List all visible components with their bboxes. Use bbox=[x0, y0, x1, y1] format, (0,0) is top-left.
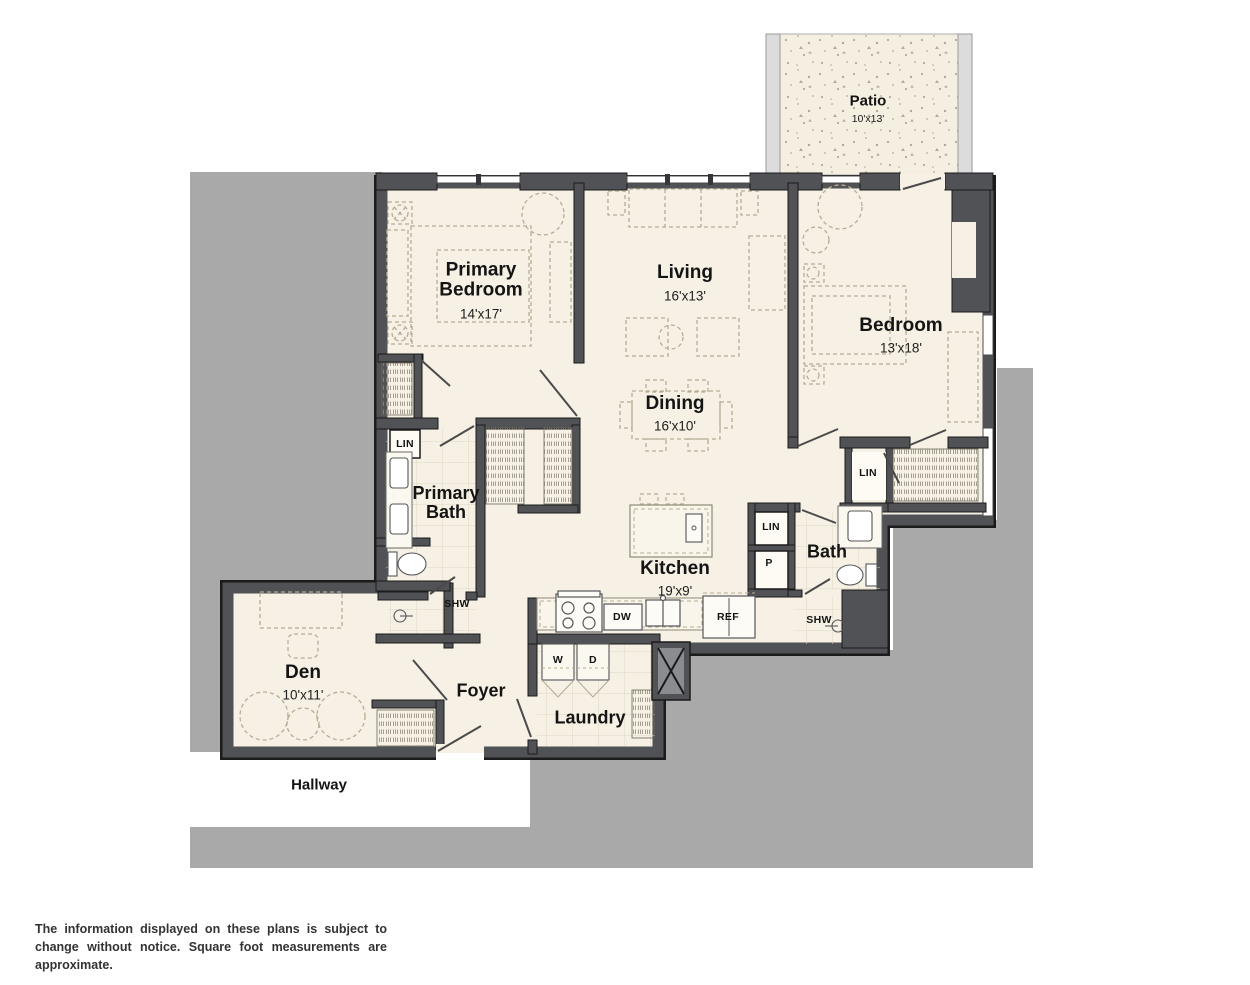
room-dims-bedroom: 13'x18' bbox=[880, 341, 922, 356]
room-label-laundry: Laundry bbox=[554, 708, 625, 729]
room-dims-den: 10'x11' bbox=[283, 688, 324, 703]
room-label-patio: Patio bbox=[850, 93, 887, 110]
room-dims-kitchen: 19'x9' bbox=[658, 584, 692, 599]
fixture-label-dryer: D bbox=[589, 654, 597, 666]
fixture-label-pantry: P bbox=[765, 557, 772, 569]
room-dims-primary-bedroom: 14'x17' bbox=[460, 307, 502, 322]
fixture-label-dishwasher: DW bbox=[613, 611, 631, 623]
disclaimer-text: The information displayed on these plans… bbox=[35, 921, 387, 974]
elevator-shaft bbox=[652, 642, 690, 700]
room-dims-dining: 16'x10' bbox=[654, 419, 696, 434]
fixture-label-linen-bedroom: LIN bbox=[859, 467, 877, 479]
room-label-primary-bedroom: Primary Bedroom bbox=[411, 261, 551, 302]
room-label-hallway: Hallway bbox=[291, 777, 347, 794]
fixture-label-shower-primary: SHW bbox=[444, 598, 469, 610]
floorplan-canvas: Patio 10'x13' Primary Bedroom 14'x17' Li… bbox=[0, 0, 1250, 985]
kitchen-sink-symbol bbox=[646, 596, 680, 627]
toilet-symbol bbox=[388, 552, 426, 576]
toilet-symbol bbox=[837, 564, 877, 586]
sink-symbol bbox=[848, 511, 872, 541]
fixture-label-shower-bath: SHW bbox=[806, 614, 831, 626]
entry-opening-outside bbox=[436, 753, 484, 763]
stove-symbol bbox=[556, 591, 602, 632]
floor-plan-svg bbox=[0, 0, 1250, 985]
room-dims-patio: 10'x13' bbox=[852, 113, 885, 125]
room-label-den: Den bbox=[285, 662, 321, 684]
room-dims-living: 16'x13' bbox=[664, 289, 706, 304]
fixture-label-linen-primary: LIN bbox=[396, 438, 414, 450]
fixture-label-refrigerator: REF bbox=[717, 611, 739, 623]
room-label-primary-bath: Primary Bath bbox=[400, 484, 492, 523]
island-sink-symbol bbox=[686, 514, 702, 542]
room-label-living: Living bbox=[657, 262, 713, 284]
room-label-bedroom: Bedroom bbox=[859, 315, 942, 337]
patio-door-opening bbox=[900, 174, 945, 189]
room-label-dining: Dining bbox=[645, 393, 704, 415]
room-label-bath: Bath bbox=[807, 542, 847, 563]
room-label-foyer: Foyer bbox=[456, 681, 505, 702]
fixture-label-washer: W bbox=[553, 654, 563, 666]
fixture-label-linen-bath: LIN bbox=[762, 521, 780, 533]
room-label-kitchen: Kitchen bbox=[640, 558, 710, 580]
east-wall-notch bbox=[952, 222, 976, 278]
